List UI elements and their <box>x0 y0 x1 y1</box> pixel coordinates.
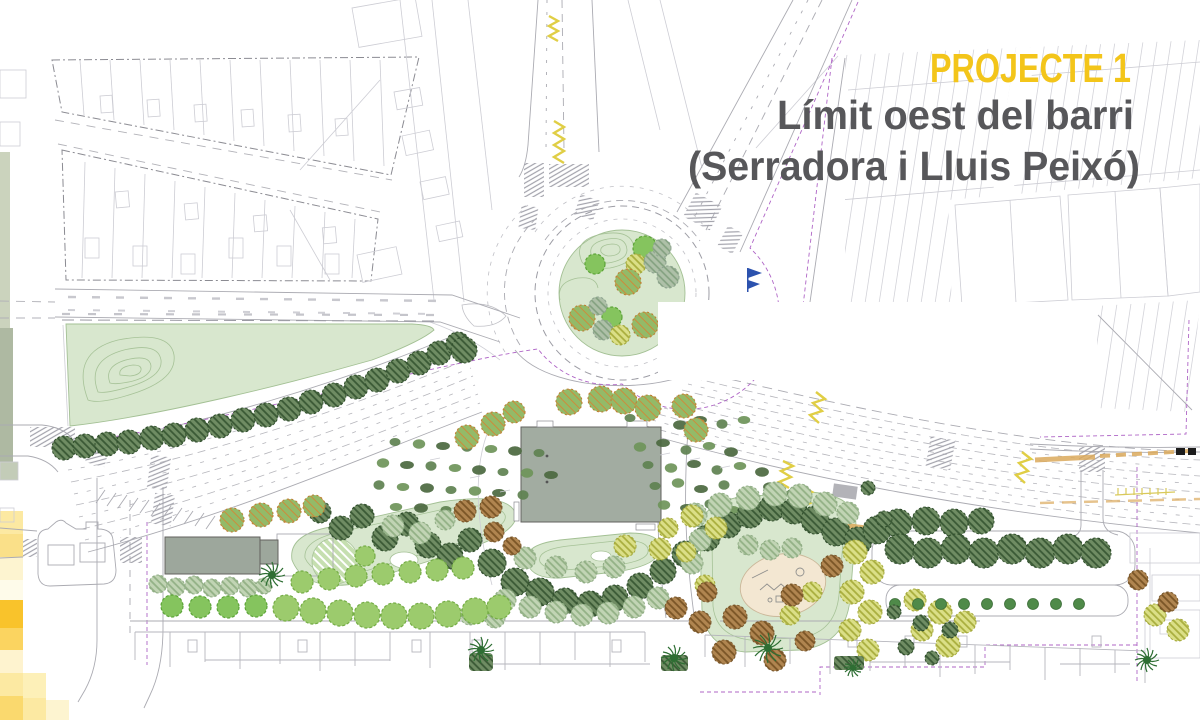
svg-text:PROJECTE 1: PROJECTE 1 <box>930 45 1131 91</box>
svg-text:(Serradora i Lluis Peixó): (Serradora i Lluis Peixó) <box>688 143 1140 189</box>
svg-text:Límit oest del barri: Límit oest del barri <box>777 92 1134 138</box>
